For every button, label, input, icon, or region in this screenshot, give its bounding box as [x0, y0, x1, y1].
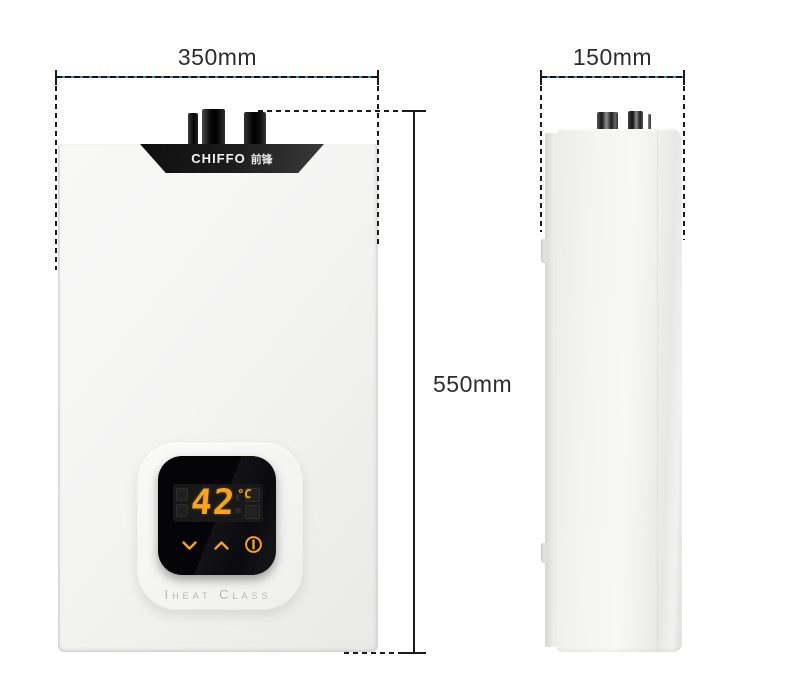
product-dimension-diagram: CHIFFO 前锋 42 °C — [0, 0, 790, 684]
front-width-extension-left — [55, 86, 57, 270]
brand-logo-text: CHIFFO — [191, 151, 245, 166]
series-label: Iheat Class — [58, 587, 378, 602]
chevron-up-icon — [213, 540, 230, 551]
height-extension-top — [258, 110, 404, 112]
flue-pipe-front-secondary — [244, 112, 266, 147]
power-icon — [244, 535, 263, 554]
side-depth-extension-left — [540, 86, 542, 232]
side-depth-tick-right — [683, 70, 685, 85]
front-width-dimension-line — [56, 76, 379, 78]
height-dimension-line — [413, 110, 415, 654]
front-width-tick-right — [377, 70, 379, 85]
side-depth-extension-right — [683, 86, 685, 240]
mounting-tab-upper — [541, 239, 547, 263]
temperature-unit: °C — [236, 487, 252, 501]
temperature-value: 42 — [189, 484, 237, 522]
front-width-tick-left — [55, 70, 57, 85]
temperature-readout: 42 °C — [189, 484, 252, 522]
flue-pipe-side-main — [597, 112, 618, 129]
side-panel-seam — [657, 130, 658, 650]
lcd-display: 42 °C — [173, 484, 263, 522]
brand-band: CHIFFO 前锋 — [140, 144, 324, 173]
control-panel-screen: 42 °C — [158, 456, 276, 575]
brand-logo-cjk: 前锋 — [251, 151, 273, 167]
side-depth-dimension-line — [541, 76, 684, 78]
lcd-mode-icon-left-top — [176, 488, 188, 501]
height-dimension-label: 550mm — [433, 371, 512, 398]
flue-pipe-front-small — [188, 113, 198, 147]
temp-up-button[interactable] — [212, 538, 230, 552]
flue-pipe-front-main — [202, 109, 225, 147]
chevron-down-icon — [181, 540, 198, 551]
flue-pipe-side-secondary — [628, 111, 643, 129]
power-button[interactable] — [243, 534, 263, 554]
height-extension-bottom — [344, 652, 404, 654]
side-depth-dimension-label: 150mm — [541, 44, 684, 71]
heater-side-body — [557, 128, 682, 652]
control-panel-bezel: 42 °C — [137, 442, 303, 610]
side-depth-tick-left — [540, 70, 542, 85]
mounting-tab-lower — [541, 543, 547, 563]
flue-pipe-side-pin — [648, 114, 651, 129]
heater-front-body: CHIFFO 前锋 42 °C — [58, 144, 378, 652]
front-width-dimension-label: 350mm — [56, 44, 379, 71]
height-tick-bottom — [403, 652, 426, 654]
temp-down-button[interactable] — [180, 538, 198, 552]
lcd-mode-icon-left-bottom — [176, 504, 188, 517]
